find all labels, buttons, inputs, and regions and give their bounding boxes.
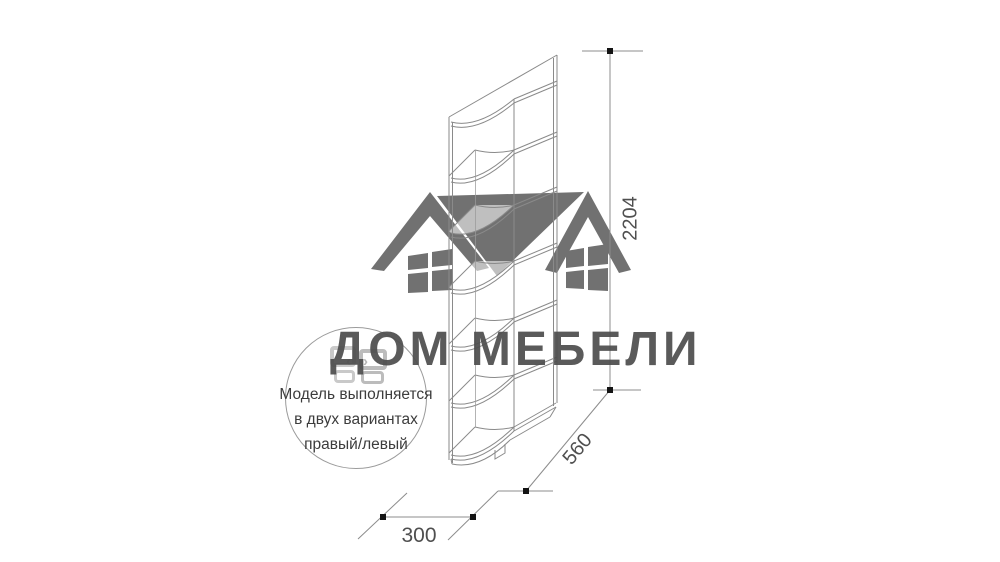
width-dimension-label: 300 — [388, 524, 450, 548]
note-line-2: в двух вариантах — [276, 407, 436, 432]
note-line-1: Модель выполняется — [276, 382, 436, 407]
dimension-lines — [358, 48, 643, 540]
height-dimension-label: 2204 — [620, 189, 643, 249]
right-window-icon — [566, 244, 608, 291]
technical-drawing-page: ‹ › ДОМ МЕБЕЛИ Модель выполняется в двух… — [0, 0, 1000, 562]
left-window-icon — [408, 249, 452, 293]
brand-watermark-text: ДОМ МЕБЕЛИ — [330, 328, 690, 372]
variant-note-text: Модель выполняется в двух вариантах прав… — [276, 382, 436, 457]
drawing-canvas — [0, 0, 1000, 562]
note-line-3: правый/левый — [276, 432, 436, 457]
